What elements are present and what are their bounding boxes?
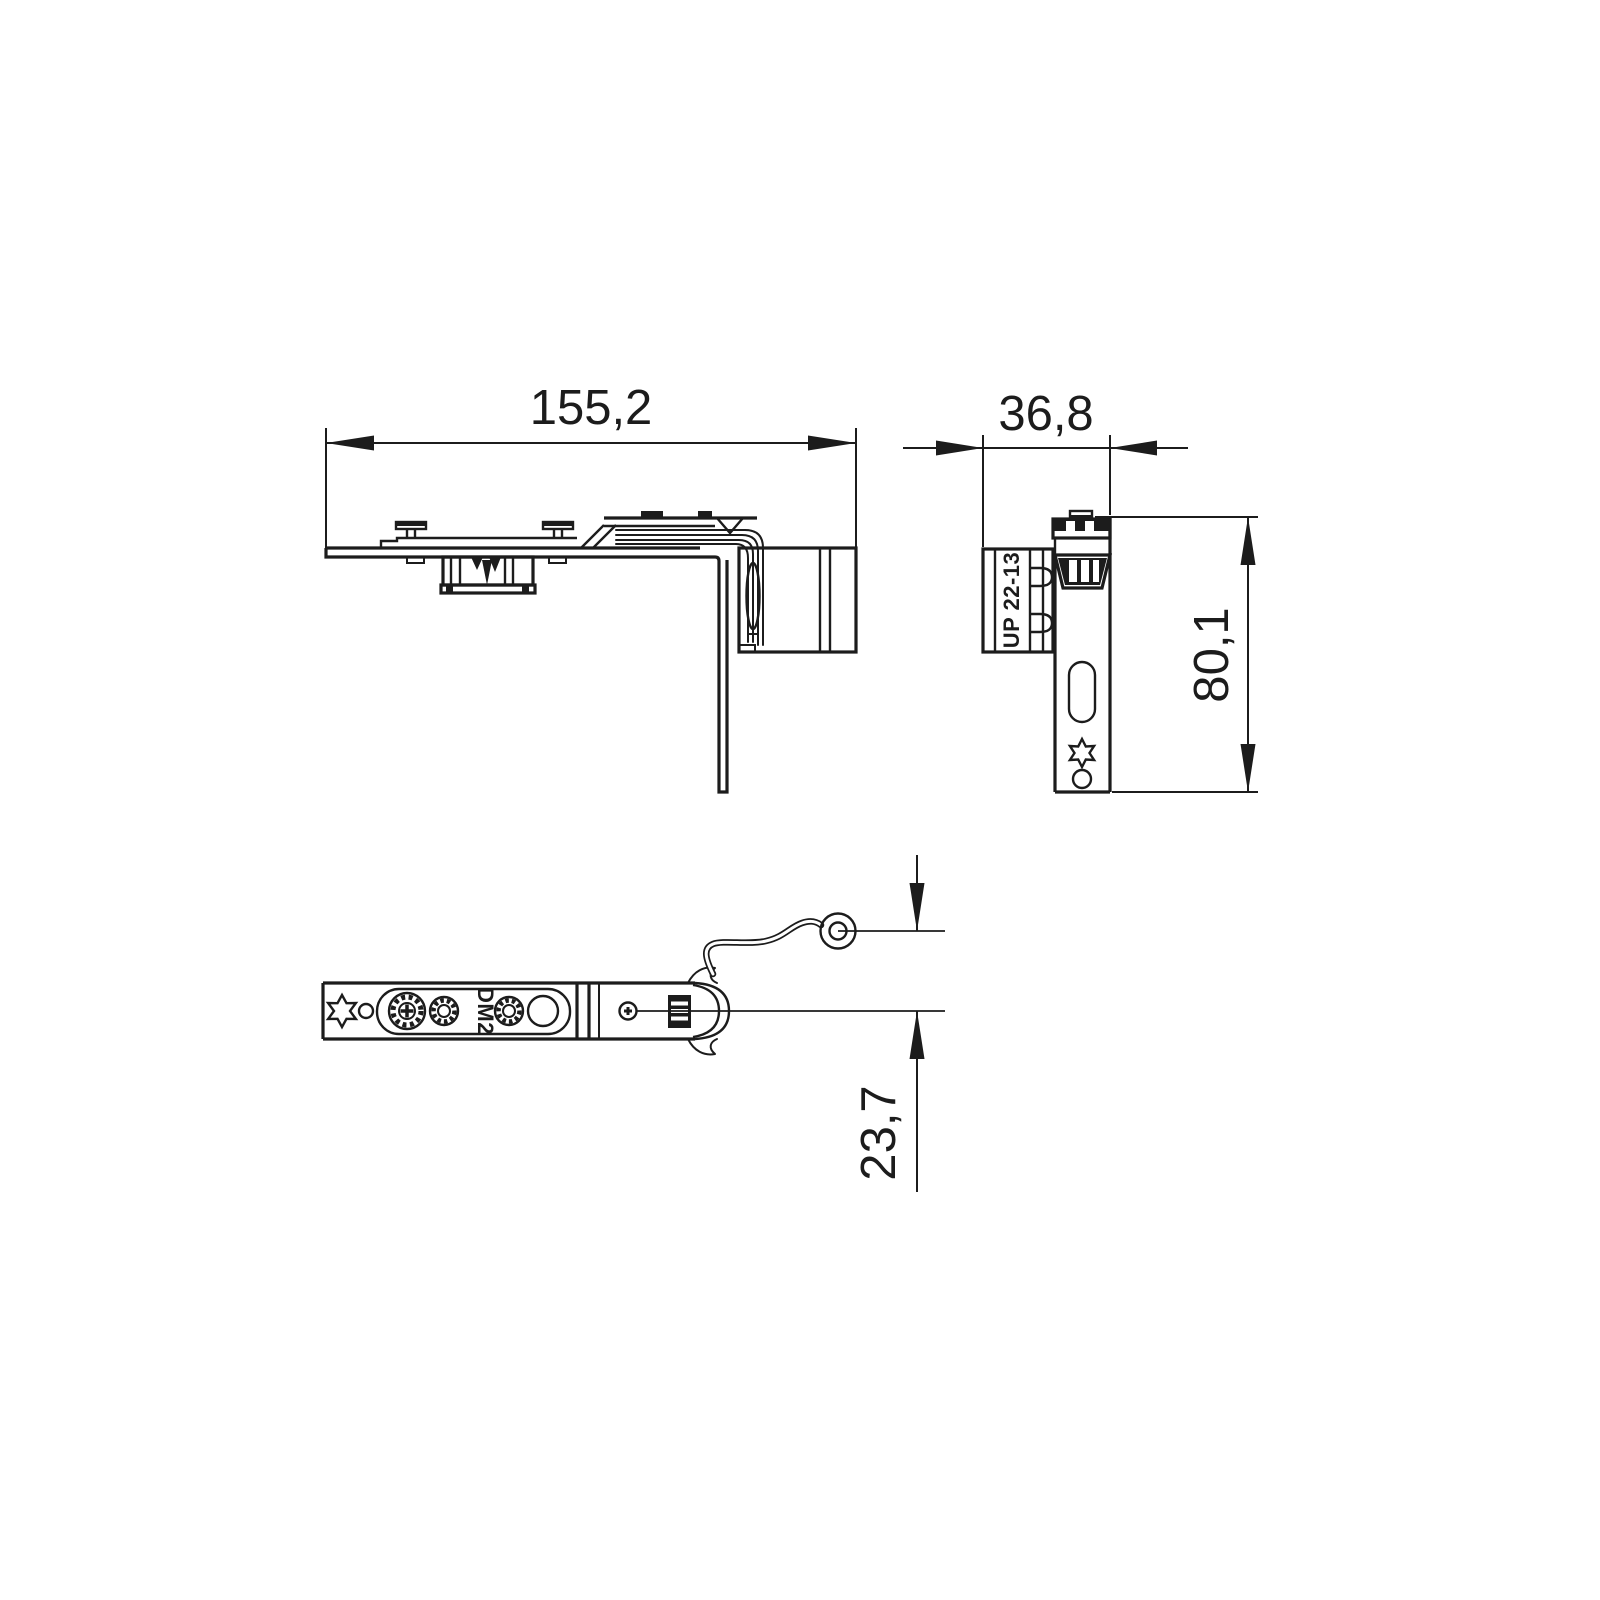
arrow-left-icon [326,436,374,451]
base-mark [446,586,453,592]
torx-star-icon [1070,739,1094,767]
dimension-label: 23,7 [852,1085,906,1180]
side-view: 155,2 [326,381,856,792]
arrow-left-icon [1110,441,1157,456]
under-tab [407,557,424,563]
round-hole [528,996,558,1026]
dimension-label: 36,8 [998,387,1093,441]
arrow-down-icon [1241,744,1256,792]
dimension-height: 80,1 [1095,517,1258,792]
round-hole [1073,770,1091,788]
bar-features: DM2 [328,987,691,1035]
phillips-adjust-screw [389,993,425,1029]
gear-slot [1093,560,1099,582]
mounting-stud [396,522,426,538]
pivot-wire-inner [706,921,821,974]
profile-marking: UP 22-13 [999,552,1024,649]
frame-profile-plate: UP 22-13 [983,549,1053,652]
block-outline [739,548,856,652]
stud-cap-top [543,522,573,526]
pin-hole [359,1004,373,1018]
oblong-slot [1069,662,1095,722]
gearbox-base [441,585,535,593]
arrow-up-icon [1241,517,1256,565]
rail-bend [581,525,604,548]
phillips-cross-icon [401,1005,414,1018]
corner-band [616,540,753,642]
phillips-cross-icon [624,1007,632,1015]
clip-slit [671,1017,688,1021]
head-claw-bottom [688,1039,717,1054]
arrow-right-icon [808,436,856,451]
corner-band [616,535,758,645]
pivot-assembly [706,914,855,975]
technical-drawing-canvas: 155,2 [0,0,1600,1600]
dimension-label: 155,2 [530,381,653,435]
gear-slot [1081,560,1089,582]
gear-tooth [471,557,483,570]
drawing-page: 155,2 [0,0,1600,1600]
torx-star-icon [328,995,356,1027]
notch-pin [1030,568,1052,586]
notch-pin [1030,614,1052,632]
phillips-screw-small [620,1003,637,1020]
knurled-screw [430,997,458,1025]
clip-slit [671,1002,688,1006]
gear-slot [1069,560,1077,582]
cover-tab [641,511,663,518]
arrow-right-icon [936,441,983,456]
stud-cap-top [396,522,426,526]
profile-view: 36,8 UP 22-13 [903,387,1258,792]
arrow-down-icon [910,883,925,931]
cover-tab [698,511,712,518]
roller-block [739,548,856,652]
knurled-screw [495,997,523,1025]
bottom-view: DM2 [323,855,945,1192]
gearbox-block [441,557,535,593]
base-mark [522,586,529,592]
dimension-depth: 36,8 [903,387,1188,547]
arrow-up-icon [910,1011,925,1059]
rail-bend [593,525,616,548]
pivot-wire-outer [706,921,821,974]
mounting-stud [543,522,573,538]
hinge-body [1053,511,1110,792]
cap-slot [1085,521,1094,531]
dimension-label: 80,1 [1185,607,1239,702]
cap-slot [1066,521,1075,531]
cap-fill [1054,520,1109,531]
under-tab [549,557,566,563]
collar-band [1055,538,1110,555]
gear-wedge [482,560,492,585]
